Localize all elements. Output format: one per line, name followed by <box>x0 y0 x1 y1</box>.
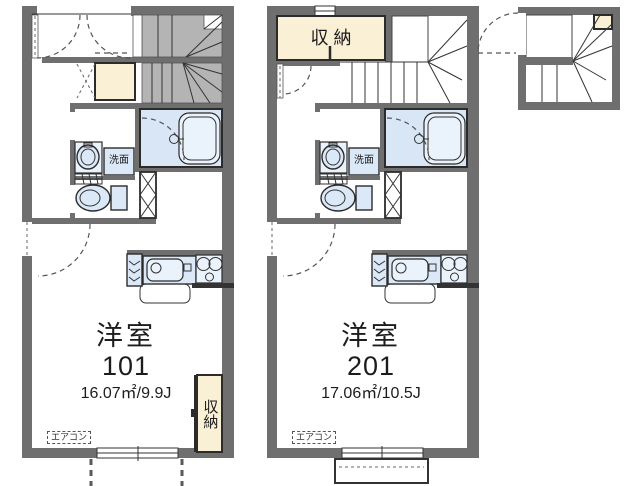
unit-101-aircon-label: エアコン <box>47 431 91 444</box>
unit-201-washstand-label: 洗面 <box>349 148 379 175</box>
unit-201-plan <box>267 6 479 483</box>
room-door-swing <box>38 224 90 276</box>
stair-landing <box>526 15 572 60</box>
stair-entry-gap <box>518 13 526 55</box>
floorplan: 洋室 101 16.07㎡/9.9J 洋室 201 17.06㎡/10.5J 収… <box>0 0 640 486</box>
unit-101-entry <box>32 14 131 58</box>
kitchen-sink <box>147 259 183 281</box>
unit-201-room-number: 201 <box>297 352 445 380</box>
stairwell-2f-plan <box>478 7 620 110</box>
unit-101-bathroom <box>140 109 222 167</box>
unit-101-room-label: 洋室 <box>52 322 200 350</box>
stair-entry-door-swing <box>478 13 518 53</box>
unit-201-bathroom <box>385 109 467 167</box>
floorplan-drawing <box>0 0 640 486</box>
left-window <box>22 222 32 256</box>
unit-201-aircon-label: エアコン <box>292 431 336 444</box>
entry-door-swing-right <box>87 15 130 58</box>
hall-door-swing <box>283 66 311 94</box>
unit-101-bottom-window <box>97 446 178 461</box>
unit-101-kitchen <box>127 254 234 303</box>
unit-101-washstand-label: 洗面 <box>104 148 134 175</box>
unit-101-toilet <box>76 185 127 211</box>
unit-201-closet-label: 収納 <box>277 16 385 60</box>
unit-101-area: 16.07㎡/9.9J <box>52 386 200 403</box>
unit-201-balcony <box>335 459 428 483</box>
unit-101-hall-closet <box>77 63 135 100</box>
unit-201-pipe-space <box>385 172 401 218</box>
unit-201-room-label: 洋室 <box>297 322 445 350</box>
room-door-swing <box>283 224 335 276</box>
unit-201-toilet <box>321 185 372 211</box>
unit-101-laundry-pan <box>75 174 102 184</box>
unit-201-kitchen <box>372 254 479 303</box>
unit-201-laundry-pan <box>320 174 347 184</box>
unit-201-area: 17.06㎡/10.5J <box>297 386 445 403</box>
unit-101-room-number: 101 <box>52 352 200 380</box>
unit-101-closet-label: 収納 <box>198 381 221 447</box>
left-window <box>267 222 277 256</box>
kitchen-sink <box>392 259 428 281</box>
entry-door-swing-left <box>37 15 80 58</box>
unit-101-pipe-space <box>140 172 156 218</box>
